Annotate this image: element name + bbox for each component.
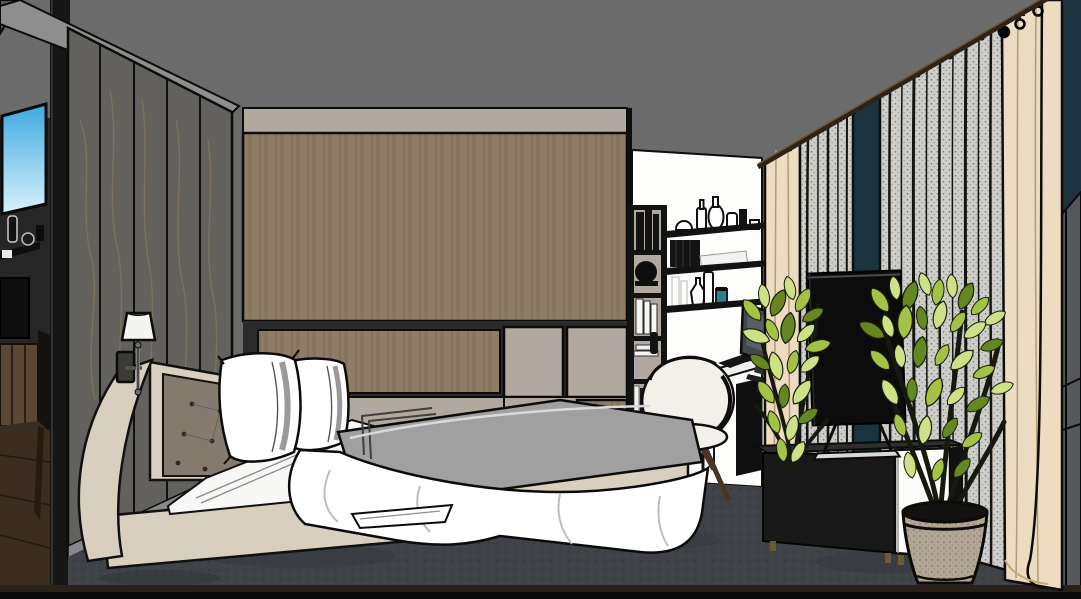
desk-drawer-unit (736, 378, 762, 476)
adjacent-window (2, 104, 46, 214)
floor-strip (0, 585, 1081, 593)
cream-panel-right (1002, 0, 1062, 590)
pillow-front (218, 350, 301, 464)
bottom-bar (0, 592, 1081, 599)
cabinet-square-1 (504, 327, 563, 397)
wood-feature-panel (243, 133, 627, 321)
scene-viewport[interactable] (0, 0, 1081, 599)
cabinet-square-2 (567, 327, 627, 397)
sconce-shade (122, 313, 155, 340)
console-front (763, 453, 895, 553)
planter-pot (903, 502, 987, 583)
shelf-white-books (636, 299, 657, 334)
adjacent-tv (0, 278, 29, 338)
shelf-books-dark (636, 210, 659, 250)
adjacent-wood-floor (0, 421, 50, 590)
adjacent-room (0, 104, 50, 599)
adjacent-cabinet (0, 330, 50, 430)
